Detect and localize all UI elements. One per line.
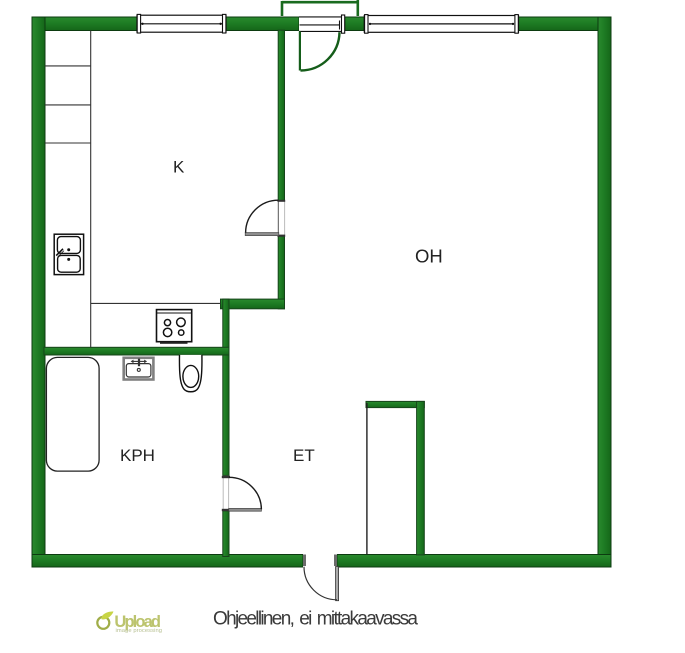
svg-text:image processing: image processing [116,628,163,634]
svg-text:KPH: KPH [120,446,155,465]
svg-text:ET: ET [293,446,315,465]
svg-text:OH: OH [415,246,443,267]
svg-text:K: K [173,158,185,177]
svg-text:Ohjeellinen, ei mittakaavassa: Ohjeellinen, ei mittakaavassa [213,609,418,630]
